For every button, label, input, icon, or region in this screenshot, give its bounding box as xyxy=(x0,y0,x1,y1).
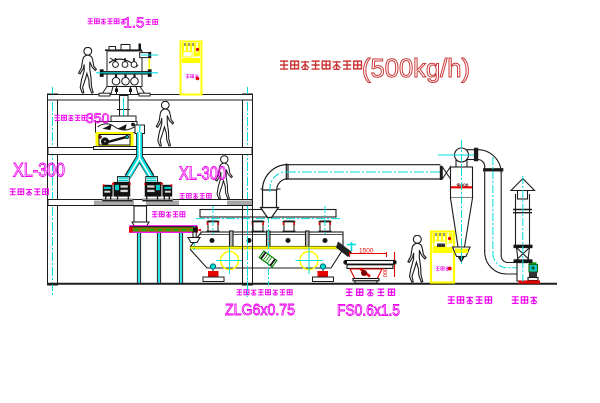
svg-text:XL-300: XL-300 xyxy=(179,164,226,184)
svg-text:1.5: 1.5 xyxy=(124,15,145,32)
svg-text:300: 300 xyxy=(381,268,387,277)
svg-text:1500: 1500 xyxy=(359,248,374,255)
svg-text:(500kg/h): (500kg/h) xyxy=(362,53,470,83)
svg-text:Φ800: Φ800 xyxy=(457,183,469,189)
svg-text:FS0.6x1.5: FS0.6x1.5 xyxy=(337,303,400,320)
svg-text:ZLG6x0.75: ZLG6x0.75 xyxy=(225,302,295,319)
svg-text:350: 350 xyxy=(86,110,110,126)
svg-text:XL-300: XL-300 xyxy=(13,161,65,182)
